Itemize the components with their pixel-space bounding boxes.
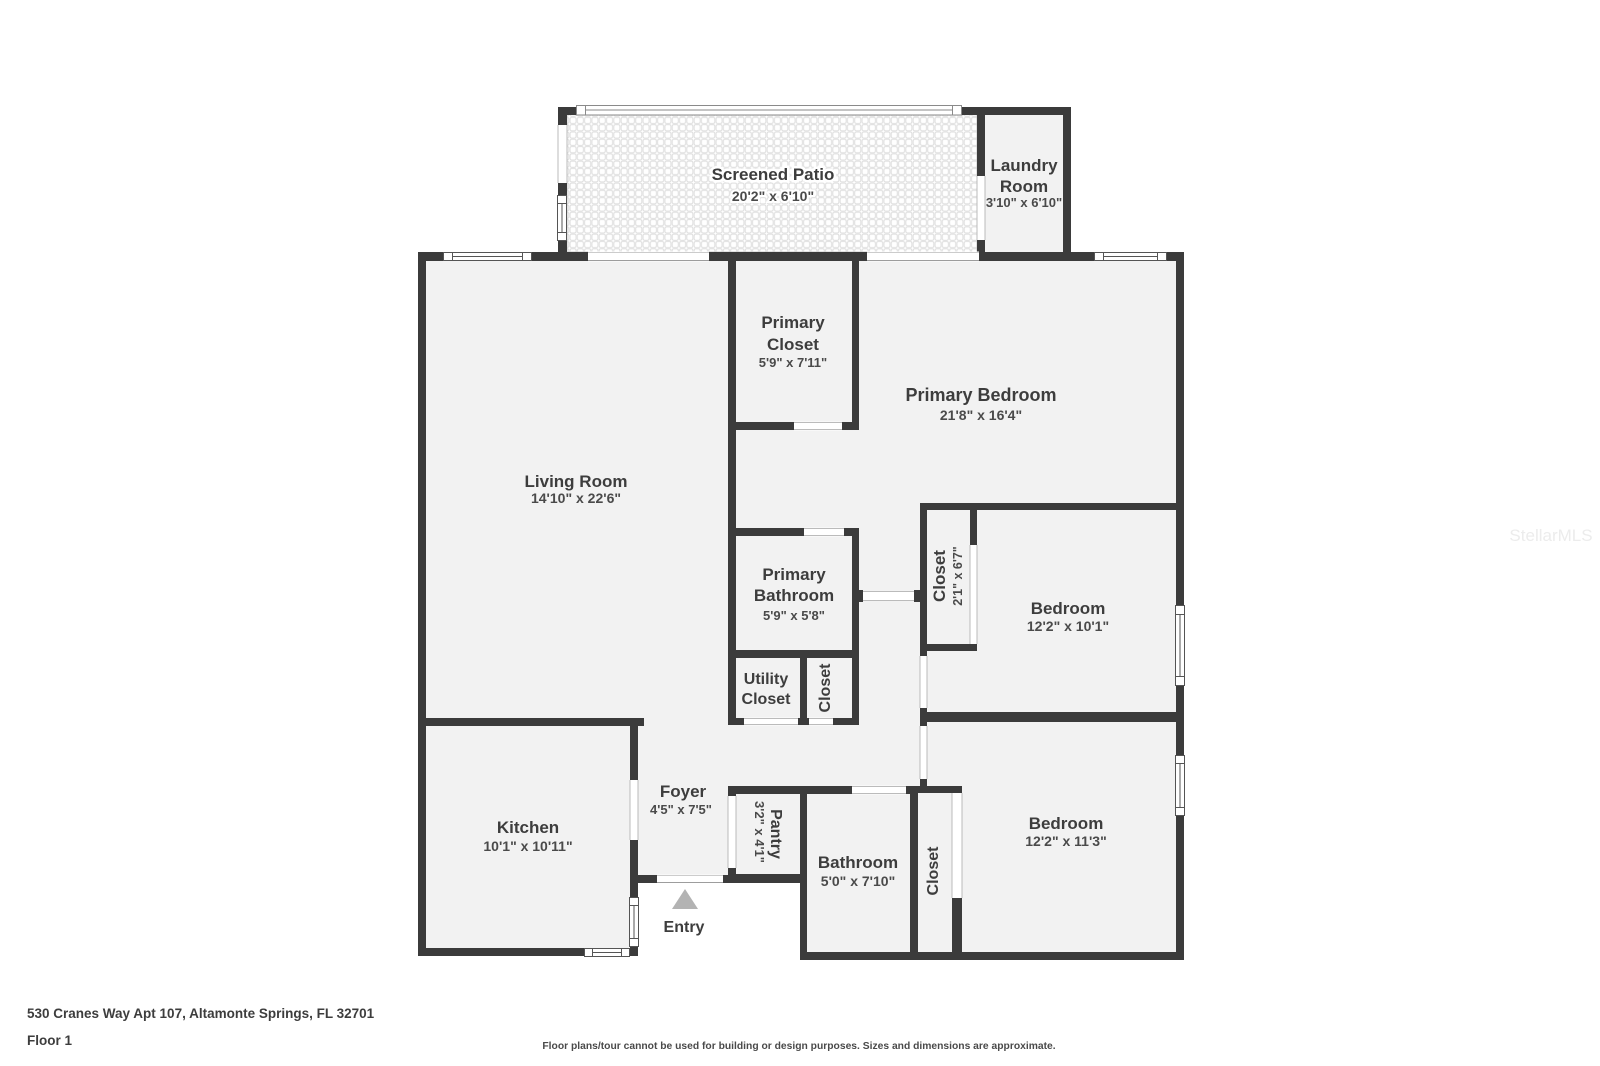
svg-text:Closet: Closet (742, 691, 792, 708)
svg-text:Entry: Entry (664, 919, 705, 936)
svg-text:Bedroom: Bedroom (1031, 599, 1106, 618)
svg-text:2'1" x 6'7": 2'1" x 6'7" (951, 546, 965, 606)
svg-text:StellarMLS: StellarMLS (1509, 526, 1592, 545)
svg-text:Closet: Closet (767, 335, 819, 354)
svg-text:Floor plans/tour cannot be use: Floor plans/tour cannot be used for buil… (542, 1041, 1055, 1052)
svg-text:Utility: Utility (744, 671, 789, 688)
svg-text:Kitchen: Kitchen (497, 818, 559, 837)
svg-text:Bathroom: Bathroom (818, 853, 898, 872)
svg-text:Closet: Closet (930, 550, 949, 602)
svg-text:3'10" x 6'10": 3'10" x 6'10" (986, 195, 1062, 210)
svg-text:14'10" x 22'6": 14'10" x 22'6" (531, 490, 621, 506)
svg-text:Pantry: Pantry (767, 809, 784, 859)
svg-text:Bedroom: Bedroom (1029, 814, 1104, 833)
svg-text:Primary: Primary (762, 565, 826, 584)
svg-text:Primary: Primary (761, 313, 825, 332)
svg-text:5'0" x 7'10": 5'0" x 7'10" (821, 873, 895, 889)
svg-text:20'2" x 6'10": 20'2" x 6'10" (732, 188, 814, 204)
svg-text:Laundry: Laundry (990, 156, 1058, 175)
svg-text:Living Room: Living Room (525, 472, 628, 491)
svg-text:Screened Patio: Screened Patio (712, 165, 835, 184)
svg-text:5'9" x 7'11": 5'9" x 7'11" (759, 355, 827, 370)
svg-text:Closet: Closet (925, 846, 942, 896)
svg-text:5'9" x 5'8": 5'9" x 5'8" (763, 608, 825, 623)
svg-text:4'5" x 7'5": 4'5" x 7'5" (650, 802, 712, 817)
svg-text:Bathroom: Bathroom (754, 586, 834, 605)
svg-text:21'8" x 16'4": 21'8" x 16'4" (940, 407, 1022, 423)
svg-text:Foyer: Foyer (660, 782, 707, 801)
svg-text:10'1" x 10'11": 10'1" x 10'11" (483, 838, 572, 854)
svg-text:3'2" x 4'1": 3'2" x 4'1" (752, 801, 767, 863)
svg-text:530 Cranes Way Apt 107, Altamo: 530 Cranes Way Apt 107, Altamonte Spring… (27, 1006, 375, 1021)
svg-text:Primary Bedroom: Primary Bedroom (905, 385, 1056, 405)
svg-text:12'2" x 10'1": 12'2" x 10'1" (1027, 618, 1109, 634)
svg-text:12'2" x 11'3": 12'2" x 11'3" (1025, 833, 1106, 849)
svg-text:Room: Room (1000, 177, 1048, 196)
svg-text:Floor 1: Floor 1 (27, 1033, 72, 1048)
svg-text:Closet: Closet (817, 663, 834, 713)
